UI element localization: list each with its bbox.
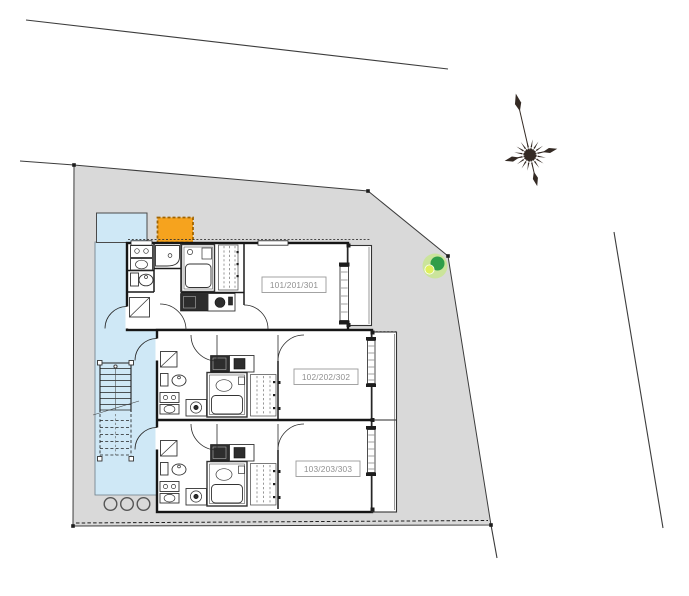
balcony-unit-1 — [348, 246, 372, 326]
north-road-line — [26, 20, 448, 69]
stair-post — [98, 361, 103, 366]
balcony-window — [366, 337, 376, 387]
east-road-line — [614, 232, 663, 528]
site-plan-page: 101/201/301 102/202/302 103/203/303 — [0, 0, 689, 596]
shoe-cabinet — [161, 352, 178, 368]
site-plan-drawing: 101/201/301 102/202/302 103/203/303 — [0, 0, 689, 596]
stair-post — [98, 457, 103, 462]
stair-post — [129, 361, 134, 366]
walkway-entrance-pad — [97, 213, 148, 243]
unit-bath-unit1 — [182, 245, 215, 292]
unit-3-label: 103/203/303 — [304, 464, 353, 474]
stair-post — [129, 457, 134, 462]
parking-space — [158, 218, 194, 243]
southeast-boundary-extension — [491, 525, 497, 558]
west-boundary-lead-line — [20, 161, 74, 165]
tree-icon — [423, 254, 448, 279]
unit-2-label: 102/202/302 — [302, 372, 351, 382]
compass-north-arrow — [513, 93, 523, 112]
unit-bath — [207, 373, 247, 418]
shoe-cabinet-unit1 — [130, 298, 150, 318]
corner-basin-fixture — [156, 246, 180, 267]
balcony-unit-2-3 — [372, 332, 397, 512]
washing-machine — [186, 400, 207, 417]
laundry-sink-fixture — [131, 246, 153, 271]
compass-rose-icon — [490, 87, 564, 192]
unit-1-label: 101/201/301 — [270, 280, 319, 290]
toilet-fixture-unit1 — [131, 273, 154, 286]
kitchen-unit1 — [181, 294, 236, 312]
